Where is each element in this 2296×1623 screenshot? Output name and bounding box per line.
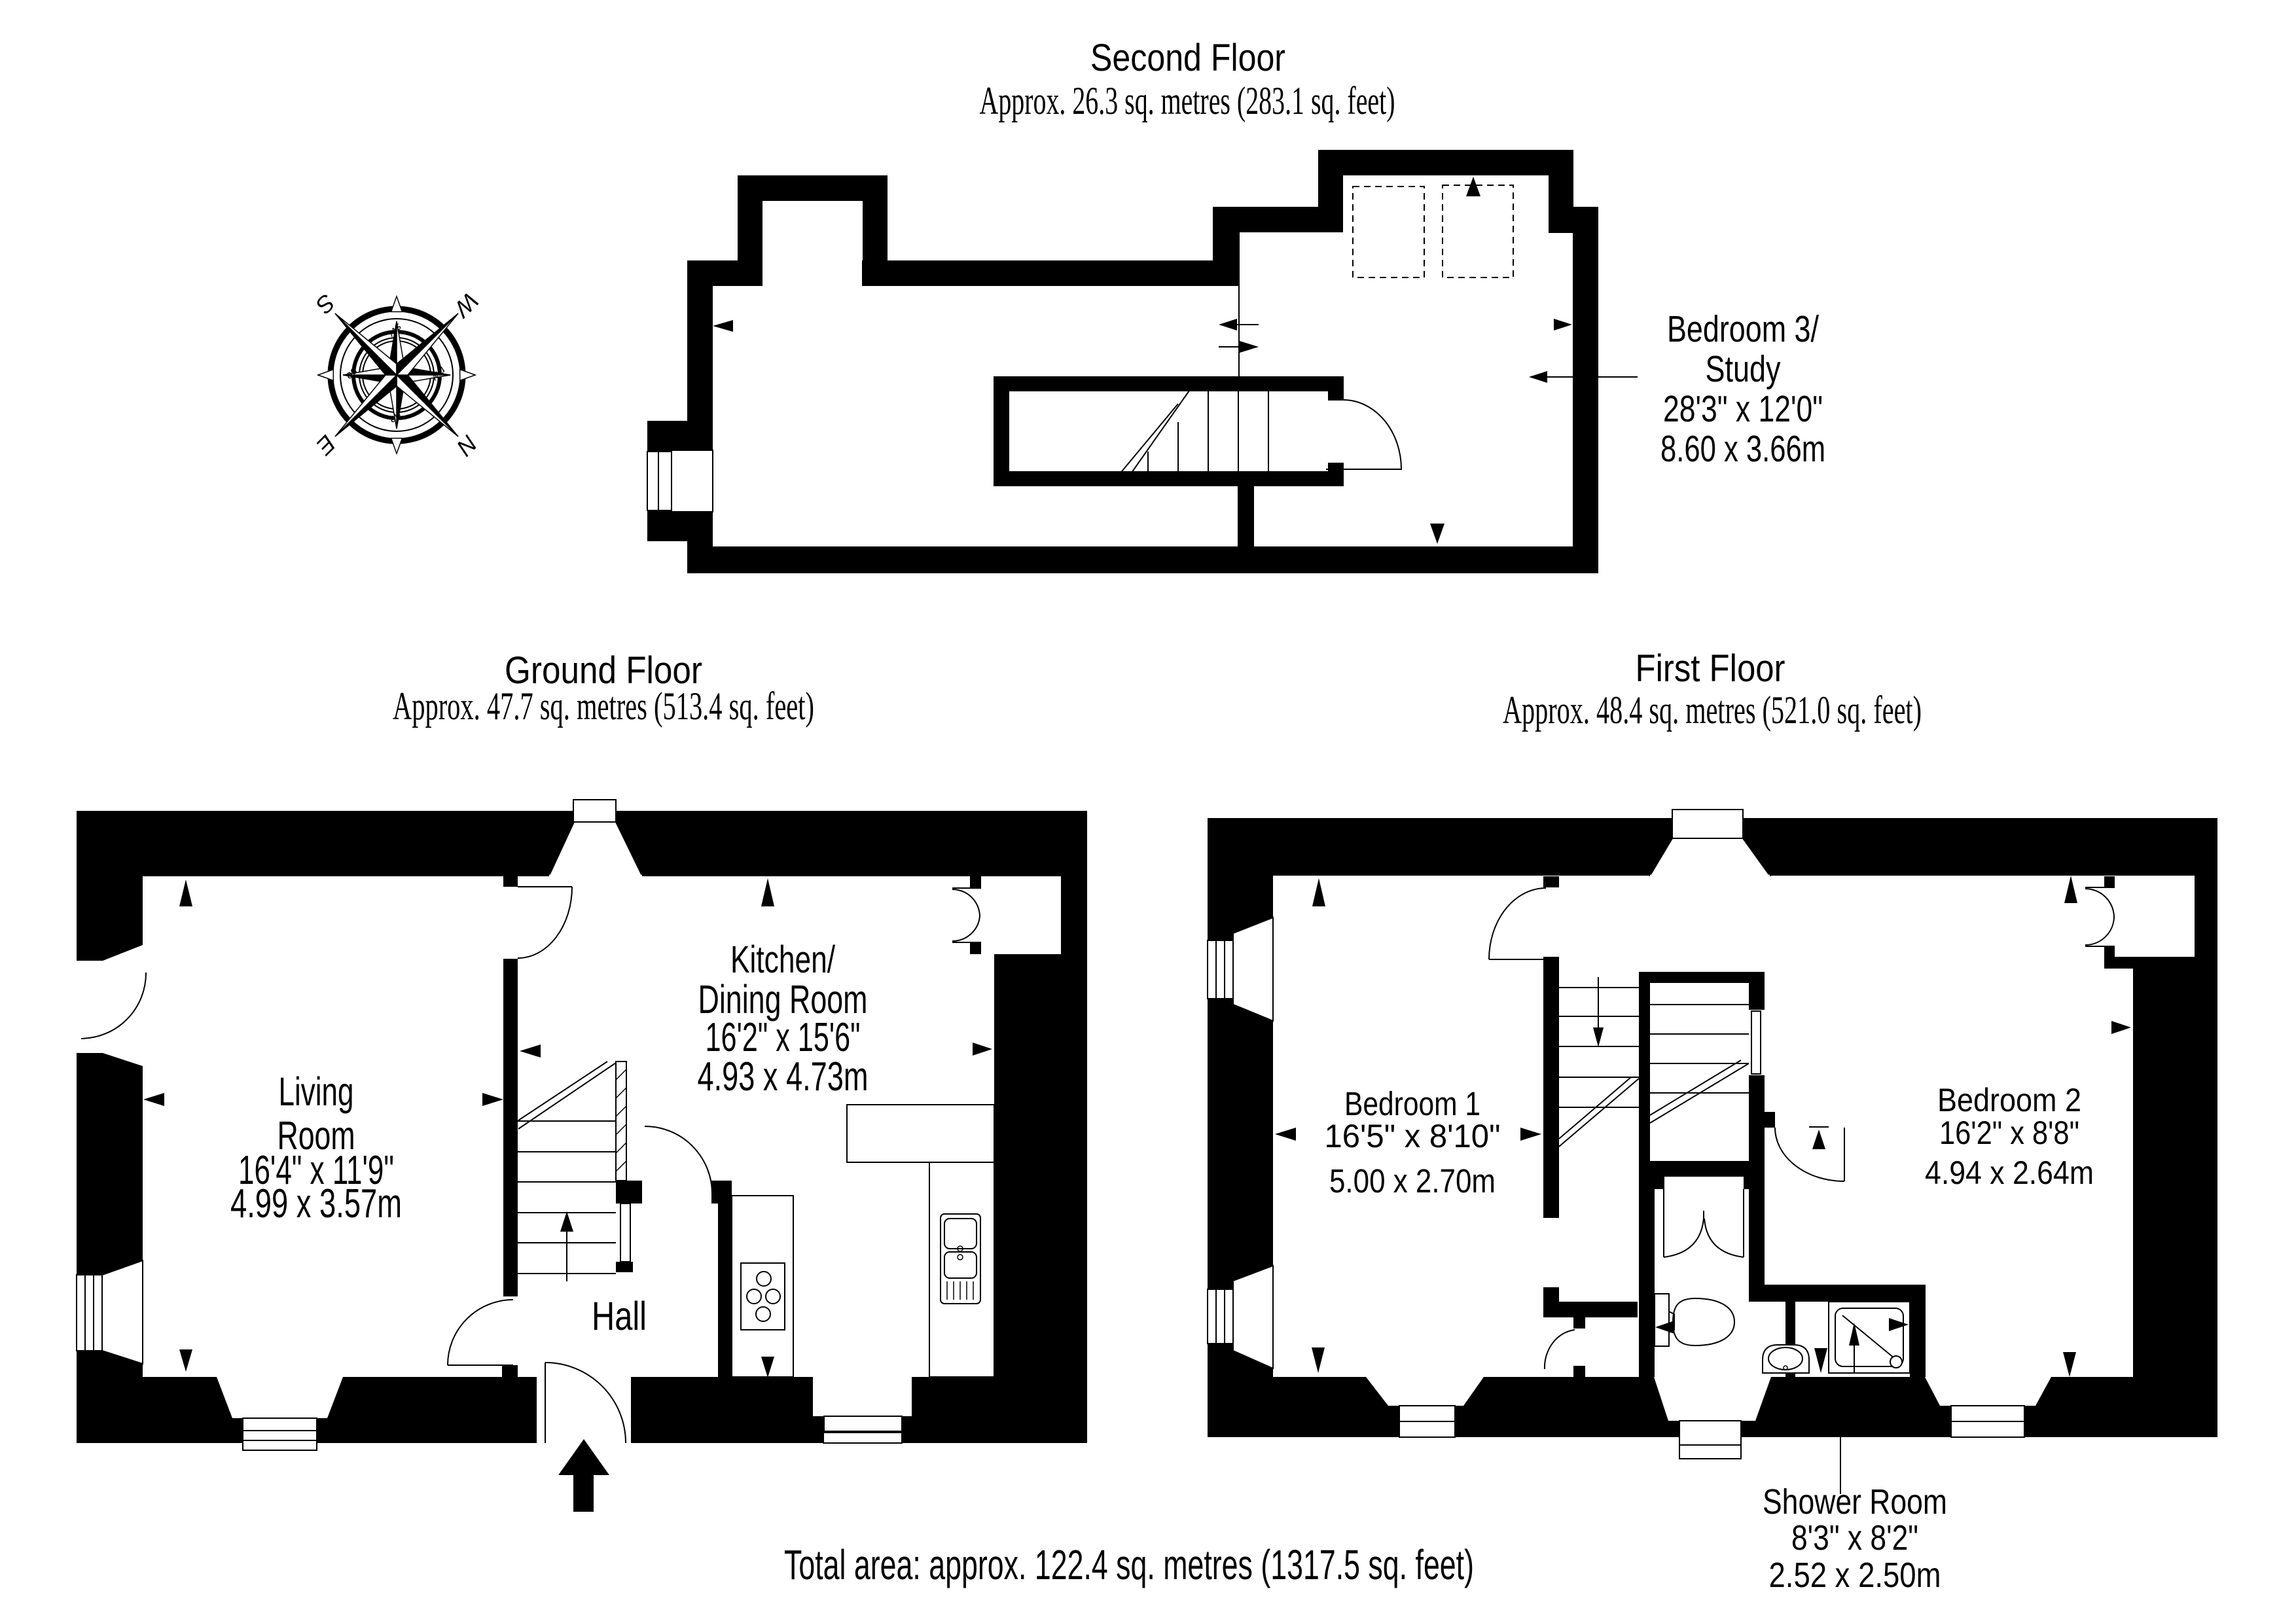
svg-text:Bedroom 2: Bedroom 2 bbox=[1937, 1082, 2081, 1118]
svg-text:Total area: approx. 122.4 sq.: Total area: approx. 122.4 sq. metres (13… bbox=[784, 1541, 1474, 1588]
svg-text:Bedroom 3/: Bedroom 3/ bbox=[1667, 308, 1819, 350]
svg-text:2.52 x 2.50m: 2.52 x 2.50m bbox=[1769, 1556, 1941, 1595]
svg-text:Approx. 26.3 sq. metres (283.1: Approx. 26.3 sq. metres (283.1 sq. feet) bbox=[980, 79, 1395, 122]
svg-text:16'2" x 15'6": 16'2" x 15'6" bbox=[706, 1015, 861, 1060]
svg-text:Hall: Hall bbox=[592, 1294, 647, 1338]
svg-text:Living: Living bbox=[279, 1069, 354, 1114]
svg-text:First Floor: First Floor bbox=[1636, 647, 1785, 690]
svg-text:Bedroom 1: Bedroom 1 bbox=[1344, 1085, 1480, 1122]
svg-text:28'3" x 12'0": 28'3" x 12'0" bbox=[1663, 388, 1823, 430]
svg-text:8'3" x 8'2": 8'3" x 8'2" bbox=[1791, 1518, 1918, 1558]
svg-text:16'2" x 8'8": 16'2" x 8'8" bbox=[1939, 1115, 2079, 1151]
svg-text:4.94 x 2.64m: 4.94 x 2.64m bbox=[1925, 1154, 2094, 1191]
svg-text:5.00 x 2.70m: 5.00 x 2.70m bbox=[1329, 1162, 1496, 1200]
svg-text:4.93 x 4.73m: 4.93 x 4.73m bbox=[698, 1054, 869, 1099]
svg-text:16'5" x 8'10": 16'5" x 8'10" bbox=[1325, 1118, 1501, 1154]
svg-text:4.99 x 3.57m: 4.99 x 3.57m bbox=[230, 1181, 402, 1226]
svg-text:Shower Room: Shower Room bbox=[1763, 1482, 1947, 1522]
svg-text:Second Floor: Second Floor bbox=[1090, 37, 1285, 79]
svg-text:Approx. 48.4 sq. metres (521.0: Approx. 48.4 sq. metres (521.0 sq. feet) bbox=[1503, 688, 1922, 732]
svg-text:Kitchen/: Kitchen/ bbox=[730, 938, 836, 981]
svg-text:Approx. 47.7 sq. metres (513.4: Approx. 47.7 sq. metres (513.4 sq. feet) bbox=[393, 685, 814, 728]
svg-text:Study: Study bbox=[1706, 348, 1781, 390]
svg-text:8.60 x 3.66m: 8.60 x 3.66m bbox=[1660, 428, 1825, 470]
